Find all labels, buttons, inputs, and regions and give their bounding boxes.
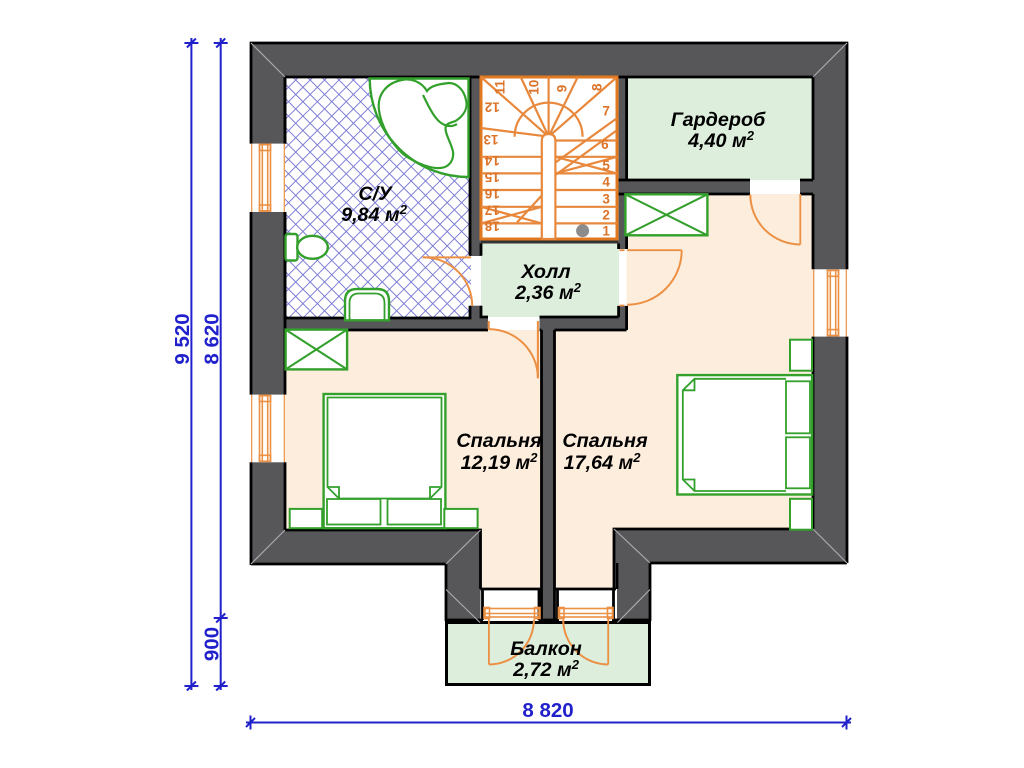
svg-text:3: 3 (602, 191, 610, 206)
svg-text:С/У: С/У (358, 183, 393, 205)
svg-text:4: 4 (602, 175, 610, 190)
svg-text:2: 2 (602, 207, 610, 222)
svg-text:5: 5 (602, 158, 610, 173)
svg-text:Холл: Холл (520, 261, 570, 283)
svg-text:8 820: 8 820 (522, 699, 573, 722)
svg-text:4,40 м2: 4,40 м2 (687, 128, 755, 152)
svg-text:17: 17 (485, 202, 500, 217)
svg-text:8: 8 (589, 83, 604, 91)
svg-text:11: 11 (492, 80, 507, 95)
svg-text:2,36 м2: 2,36 м2 (514, 280, 582, 304)
svg-text:12,19 м2: 12,19 м2 (461, 450, 539, 474)
svg-text:9: 9 (554, 85, 569, 93)
svg-text:2,72 м2: 2,72 м2 (512, 657, 580, 681)
svg-text:9 520: 9 520 (171, 313, 194, 364)
svg-text:17,64 м2: 17,64 м2 (564, 450, 642, 474)
svg-text:7: 7 (602, 103, 610, 118)
svg-text:Спальня: Спальня (562, 430, 648, 452)
svg-text:13: 13 (483, 132, 499, 147)
svg-text:6: 6 (601, 137, 609, 152)
svg-text:10: 10 (527, 80, 542, 95)
svg-text:9,84 м2: 9,84 м2 (341, 202, 408, 226)
svg-text:12: 12 (485, 100, 500, 115)
svg-text:14: 14 (484, 153, 500, 168)
svg-text:Спальня: Спальня (456, 430, 542, 452)
svg-text:18: 18 (484, 218, 500, 233)
svg-text:900: 900 (201, 627, 224, 661)
svg-text:8 620: 8 620 (201, 313, 224, 364)
svg-text:15: 15 (484, 170, 500, 185)
svg-text:1: 1 (602, 223, 610, 238)
svg-text:16: 16 (484, 186, 500, 201)
